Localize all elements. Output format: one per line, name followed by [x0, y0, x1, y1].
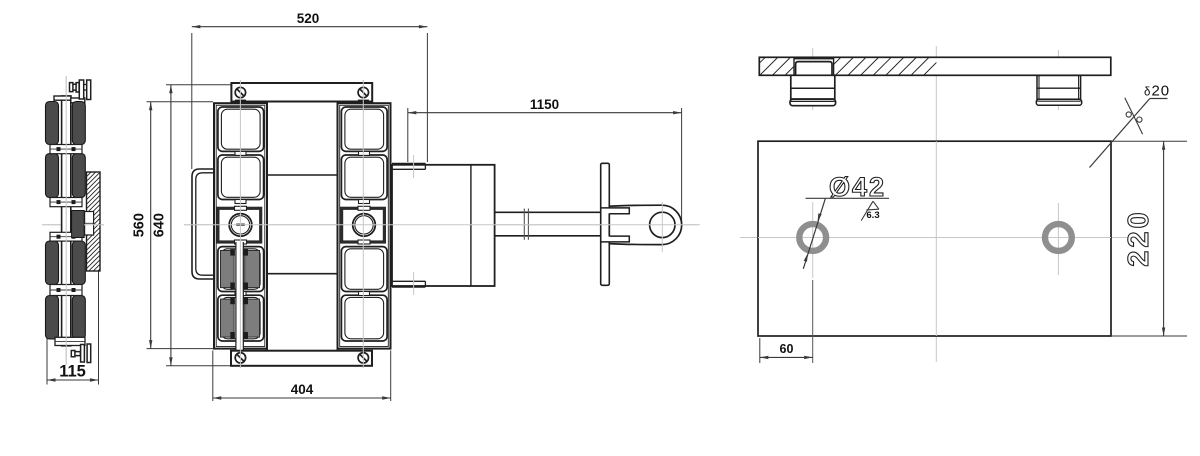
svg-text:560: 560	[132, 213, 148, 237]
svg-text:60: 60	[780, 342, 794, 356]
svg-text:404: 404	[291, 382, 314, 397]
svg-text:6.3: 6.3	[866, 210, 879, 221]
svg-text:20: 20	[1151, 83, 1170, 100]
svg-text:1150: 1150	[530, 97, 559, 112]
svg-text:220: 220	[1123, 209, 1155, 266]
svg-text:640: 640	[152, 213, 168, 237]
svg-text:δ: δ	[1144, 87, 1150, 99]
svg-text:520: 520	[297, 11, 320, 26]
svg-text:Ø42: Ø42	[829, 172, 886, 202]
svg-text:115: 115	[59, 363, 86, 381]
